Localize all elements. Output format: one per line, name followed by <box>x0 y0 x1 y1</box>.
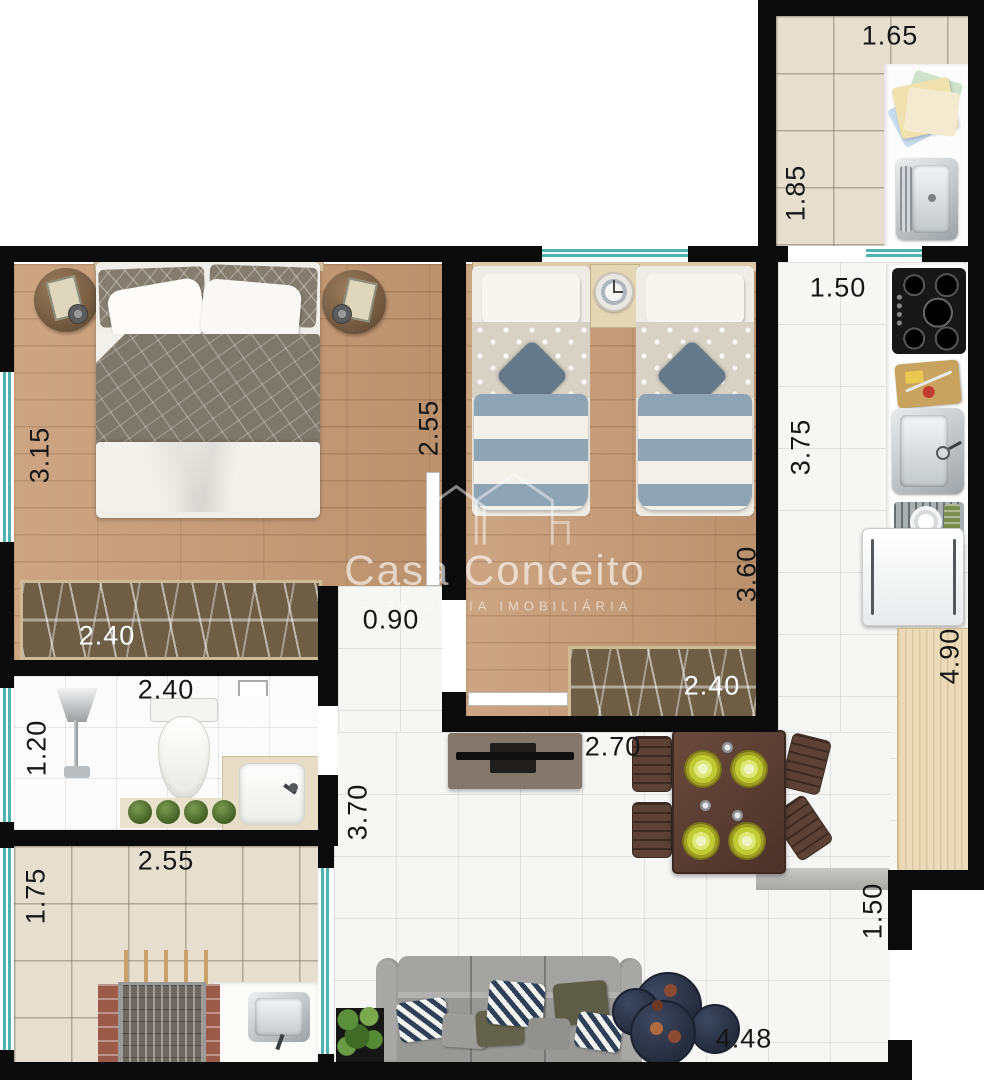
grill-skewer <box>184 950 188 986</box>
plate <box>730 750 768 788</box>
toilet-bowl <box>158 716 210 800</box>
cup <box>68 304 88 324</box>
window-laundry <box>866 246 922 262</box>
bathroom-door-mark <box>238 680 268 696</box>
window-bedroom2 <box>542 246 688 262</box>
grill-skewer <box>204 950 208 986</box>
bathroom-plant <box>184 800 208 824</box>
dim-living-width: 4.48 <box>716 1026 773 1053</box>
toilet <box>148 698 218 804</box>
decor-bowl <box>650 1022 663 1035</box>
clothes-pile <box>888 70 966 152</box>
grill-brick-left <box>98 984 120 1062</box>
faucet-knob <box>936 446 950 460</box>
dining-chair <box>632 802 672 858</box>
dim-laundry-width: 1.65 <box>862 23 919 50</box>
window-balcony-left <box>0 848 14 1050</box>
double-bed <box>96 262 320 518</box>
laundry-sink <box>896 158 958 240</box>
dim-bedroom2-wardrobe: 2.40 <box>684 673 741 700</box>
master-wardrobe <box>20 580 322 660</box>
dim-kitchen-depth: 3.75 <box>788 419 815 476</box>
folded-blanket <box>96 442 320 512</box>
glass <box>722 742 733 753</box>
glass <box>700 800 711 811</box>
living-plant <box>336 1008 384 1062</box>
dim-balcony-width: 2.55 <box>138 848 195 875</box>
sofa <box>376 956 642 1062</box>
shower-arm <box>74 720 78 768</box>
dim-bathroom-depth: 1.20 <box>24 720 51 777</box>
plant-leaves <box>330 1000 390 1066</box>
window-master <box>0 372 14 542</box>
decor-bowl <box>668 1030 681 1043</box>
dim-laundry-depth: 1.85 <box>783 165 810 222</box>
shower-head <box>56 688 98 722</box>
grill-skewer <box>124 950 128 986</box>
cloth-cream <box>904 87 961 137</box>
wall-master-bedroom2 <box>442 248 466 600</box>
cutting-board <box>894 359 962 408</box>
cheese <box>905 370 924 384</box>
pillow <box>646 274 744 324</box>
dim-living-depth: 3.70 <box>345 784 372 841</box>
laundry-sink-ridges <box>900 166 912 232</box>
window-bathroom <box>0 688 14 822</box>
wall-right <box>968 0 984 890</box>
tv-stand <box>448 733 582 789</box>
wall-laundry-left <box>758 0 776 246</box>
door-opening-bathroom <box>318 706 338 775</box>
bedroom2-door-leaf <box>468 692 568 706</box>
refrigerator <box>862 528 964 626</box>
striped-duvet <box>638 394 752 510</box>
cup <box>332 304 352 324</box>
plate <box>682 822 720 860</box>
bathroom-faucet-knob <box>289 783 298 792</box>
twin-bed-left <box>472 266 590 516</box>
plate <box>684 750 722 788</box>
bathroom-sink <box>239 763 305 825</box>
bathroom-vanity <box>222 756 320 832</box>
bbq-grill <box>98 950 222 1062</box>
door-opening-bedroom2 <box>442 600 466 692</box>
dim-hallway-width: 0.90 <box>363 607 420 634</box>
plate <box>728 822 766 860</box>
wall-hallway-left <box>318 586 338 676</box>
fridge-handle-left <box>871 539 874 615</box>
bathroom-plant <box>128 800 152 824</box>
glass <box>732 810 743 821</box>
dim-tv-wall-width: 2.70 <box>585 734 642 761</box>
decor-bowl <box>664 984 677 997</box>
shower-base <box>64 766 90 778</box>
wall-entry-vertical <box>888 870 912 950</box>
wall-bedroom2-right <box>756 248 778 732</box>
twin-bed-right <box>636 266 754 516</box>
decor-bowl <box>652 1000 663 1011</box>
grill-grate <box>118 982 206 1068</box>
tomato <box>922 385 935 398</box>
dim-bathroom-width: 2.40 <box>138 677 195 704</box>
kitchen-sink <box>892 408 964 494</box>
striped-duvet <box>474 394 588 510</box>
dim-master-depth: 3.15 <box>27 427 54 484</box>
grill-skewer <box>164 950 168 986</box>
wall-bathroom-right-upper <box>318 676 338 706</box>
wall-entry-corner <box>888 1040 912 1080</box>
tv <box>456 752 574 760</box>
laundry-sink-drain <box>928 194 936 202</box>
faucet <box>948 441 962 450</box>
coffee-table <box>630 1000 696 1066</box>
fridge-handle-right <box>953 539 956 615</box>
window-balcony-right <box>318 868 334 1054</box>
wall-bathroom-balcony <box>0 830 334 846</box>
wall-laundry-top <box>758 0 984 16</box>
shower <box>54 688 100 788</box>
dim-balcony-depth: 1.75 <box>23 868 50 925</box>
wall-bedroom2-bottom <box>442 716 778 732</box>
cooktop <box>892 268 966 354</box>
dim-counter-length: 4.90 <box>937 628 964 685</box>
alarm-clock <box>594 272 634 312</box>
throw-pillow-gray <box>527 1017 570 1050</box>
balcony-sink <box>248 992 310 1042</box>
balcony-sink-basin <box>255 998 303 1036</box>
dim-bedroom2-depth: 3.60 <box>734 546 761 603</box>
bathroom-plant <box>156 800 180 824</box>
door-opening-laundry <box>788 246 866 262</box>
wall-bottom <box>0 1062 912 1080</box>
master-door-leaf <box>426 472 440 586</box>
floor-plan: 1.65 1.85 1.50 3.75 3.15 2.55 2.40 3.60 … <box>0 0 984 1080</box>
dim-entry-width: 1.50 <box>860 883 887 940</box>
nightstand-left <box>34 268 98 332</box>
clock-hand <box>614 291 623 293</box>
grill-skewer <box>144 950 148 986</box>
pillow <box>482 274 580 324</box>
bathroom-plant <box>212 800 236 824</box>
nightstand-right <box>322 270 386 334</box>
dim-kitchen-width: 1.50 <box>810 275 867 302</box>
dim-master-wardrobe: 2.40 <box>79 623 136 650</box>
dim-master-width: 2.55 <box>416 400 443 457</box>
